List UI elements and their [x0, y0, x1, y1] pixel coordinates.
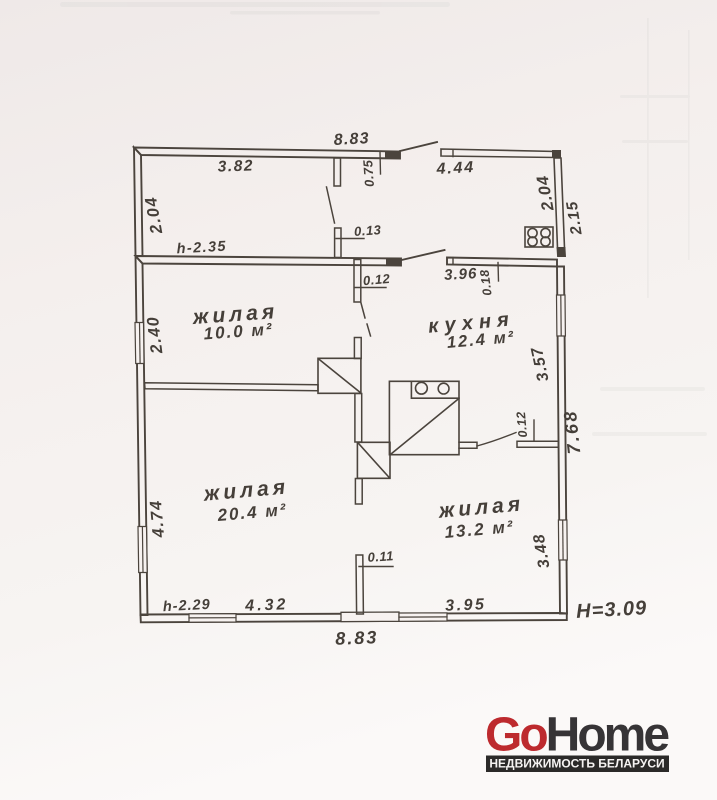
svg-text:НЕДВИЖИМОСТЬ БЕЛАРУСИ: НЕДВИЖИМОСТЬ БЕЛАРУСИ [489, 757, 664, 771]
svg-text:3.96: 3.96 [444, 265, 478, 284]
svg-text:0.13: 0.13 [354, 222, 383, 239]
svg-text:0.12: 0.12 [362, 271, 391, 288]
svg-text:3.82: 3.82 [217, 157, 254, 175]
svg-text:0.11: 0.11 [367, 548, 394, 565]
svg-text:GoHome: GoHome [485, 709, 669, 762]
svg-text:4.44: 4.44 [435, 159, 475, 178]
svg-text:0.75: 0.75 [360, 159, 377, 188]
svg-text:4.32: 4.32 [244, 596, 289, 615]
svg-text:H=3.09: H=3.09 [576, 597, 648, 623]
svg-text:3.95: 3.95 [445, 596, 487, 614]
svg-text:4.74: 4.74 [147, 499, 168, 540]
svg-text:h-2.35: h-2.35 [176, 239, 227, 258]
svg-text:0.12: 0.12 [514, 411, 530, 438]
svg-text:8.83: 8.83 [335, 627, 379, 648]
svg-text:8.83: 8.83 [333, 130, 370, 149]
svg-text:h-2.29: h-2.29 [162, 597, 211, 615]
